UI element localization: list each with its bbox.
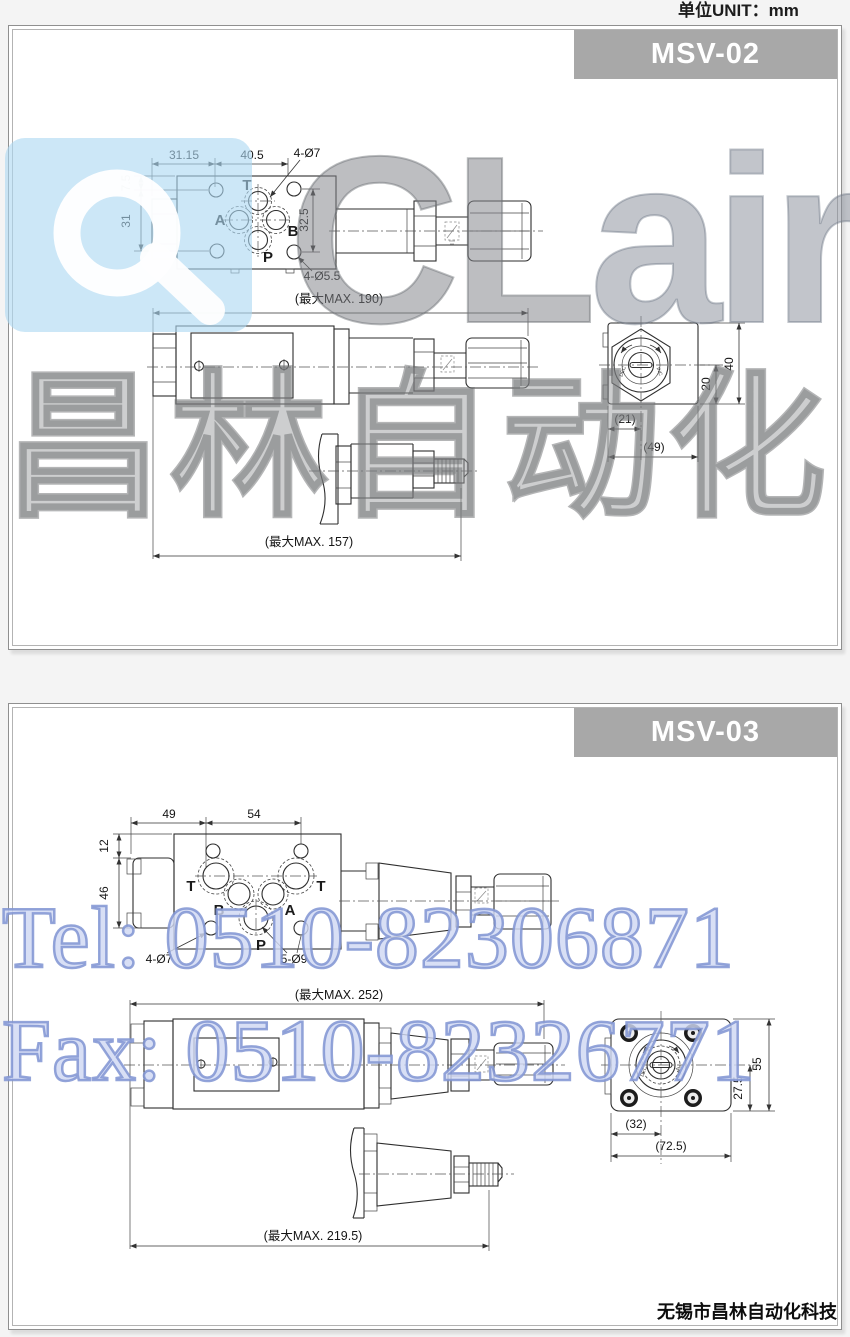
- msv03-cone-side: [339, 863, 561, 940]
- port-label-T1: T: [186, 878, 195, 895]
- valve-symbol: [445, 222, 459, 244]
- port-label-P: P: [263, 249, 273, 266]
- dim-31-15: 31.15: [169, 148, 199, 162]
- port-label-P: P: [256, 937, 266, 954]
- port-label-T: T: [242, 177, 251, 194]
- valve-symbol: [441, 356, 454, 372]
- inc-label: INC: [674, 1067, 683, 1078]
- dim-55: 55: [750, 1057, 764, 1071]
- msv03-end-view: DEC INC 27.5 55 (32) (72.5): [601, 1011, 775, 1164]
- port-label-A: A: [285, 902, 296, 919]
- spline-tip: [498, 1163, 502, 1182]
- msv02-side-view: (最大MAX. 190): [147, 292, 539, 559]
- dim-49: (49): [643, 440, 664, 454]
- panel-msv03: MSV-03 49 54 12 46: [8, 703, 842, 1330]
- valve-body-side: [173, 1019, 364, 1109]
- nameplate: [194, 1038, 279, 1091]
- dim-40-5: 40.5: [240, 148, 264, 162]
- spline-tip: [464, 459, 468, 477]
- msv02-cartridge-side: [329, 201, 543, 261]
- company-footer: 无锡市昌林自动化科技: [657, 1298, 837, 1324]
- nameplate: [191, 333, 293, 398]
- port-circles: [222, 184, 293, 257]
- dim-46: 46: [97, 886, 111, 900]
- msv02-end-view: DEC INC 20 40 (21) (49): [599, 316, 745, 462]
- msv03-top-view: 49 54 12 46: [97, 807, 561, 966]
- dim-32-5: 32.5: [297, 208, 311, 232]
- dim-21: (21): [614, 412, 635, 426]
- dim-5-d9: 5-Ø9: [281, 952, 308, 966]
- hex-nut: [152, 199, 177, 259]
- dim-27-5: 27.5: [731, 1076, 745, 1100]
- dim-max-252: (最大MAX. 252): [295, 988, 383, 1002]
- port-label-B: B: [214, 902, 225, 919]
- catalog-page: 单位UNIT：mm MSV-02: [0, 0, 850, 1337]
- valve-symbol: [475, 1056, 488, 1072]
- inc-label: INC: [655, 367, 664, 378]
- dec-label: DEC: [618, 365, 627, 377]
- dim-12: 12: [97, 839, 111, 853]
- dim-54: 54: [247, 807, 261, 821]
- port-label-A: A: [215, 212, 226, 229]
- dim-4-d5-5: 4-Ø5.5: [304, 269, 341, 283]
- port-circles: [195, 858, 317, 937]
- dim-20: 20: [699, 377, 713, 391]
- dim-7-5: 7.5: [119, 174, 133, 191]
- dim-4-d7: 4-Ø7: [294, 146, 321, 160]
- dim-max-157: (最大MAX. 157): [265, 535, 353, 549]
- panel-msv02: MSV-02: [8, 25, 842, 650]
- dim-max-190: (最大MAX. 190): [295, 292, 383, 306]
- msv03-drawing: 49 54 12 46: [9, 704, 843, 1331]
- msv03-partial-view: (最大MAX. 219.5): [130, 1128, 514, 1251]
- unit-label: 单位UNIT：mm: [678, 0, 799, 21]
- dim-40: 40: [722, 357, 736, 371]
- msv02-top-view: T A B P 31.15 40.5 4-Ø7 7.5 31: [119, 146, 543, 283]
- dim-32: (32): [625, 1117, 646, 1131]
- dim-4-d7: 4-Ø7: [146, 952, 173, 966]
- dim-72-5: (72.5): [655, 1139, 686, 1153]
- msv02-drawing: T A B P 31.15 40.5 4-Ø7 7.5 31: [9, 26, 843, 651]
- dim-max-219-5: (最大MAX. 219.5): [264, 1229, 363, 1243]
- dim-49: 49: [162, 807, 176, 821]
- port-label-T2: T: [316, 878, 325, 895]
- msv03-side-view: (最大MAX. 252): [124, 988, 565, 1249]
- dim-31: 31: [119, 214, 133, 228]
- valve-body-side: [176, 326, 334, 404]
- msv02-partial-view: (最大MAX. 157): [153, 434, 479, 561]
